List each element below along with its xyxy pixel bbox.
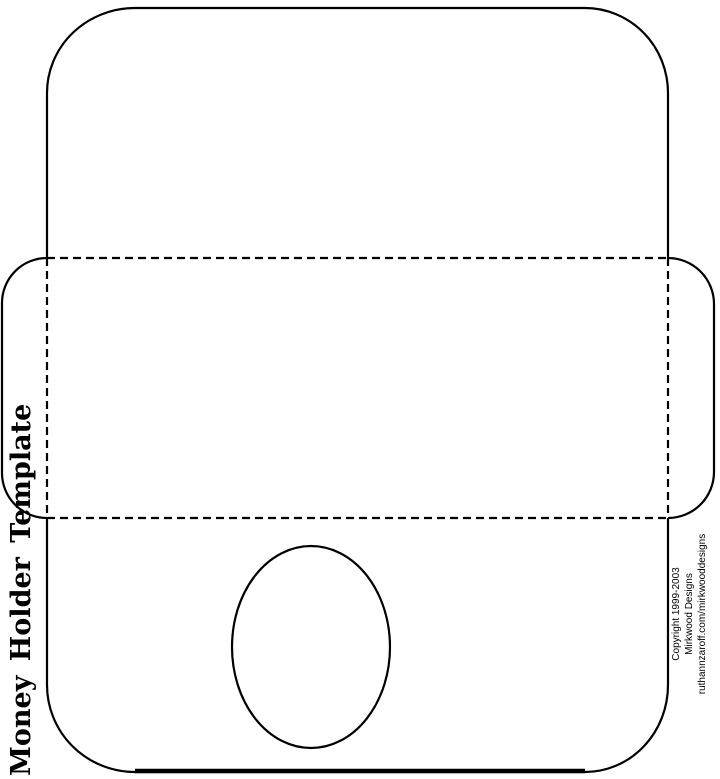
envelope-lower-outline [47,518,668,772]
credit-website-line: ruthannzaroff.com/mirkwooddesigns [696,527,709,701]
template-title: Money Holder Template [6,404,37,776]
money-holder-template-page: Money Holder Template Copyright 1999-200… [0,0,720,779]
envelope-upper-outline [47,8,668,258]
envelope-template-drawing [0,0,720,779]
thumb-cutout-oval [232,546,390,748]
credits-block: Copyright 1999-2003 Mirkwood Designs rut… [670,527,709,701]
credit-copyright-line: Copyright 1999-2003 [670,527,683,701]
right-glue-tab-outline [668,258,714,518]
credit-designer-line: Mirkwood Designs [683,527,696,701]
